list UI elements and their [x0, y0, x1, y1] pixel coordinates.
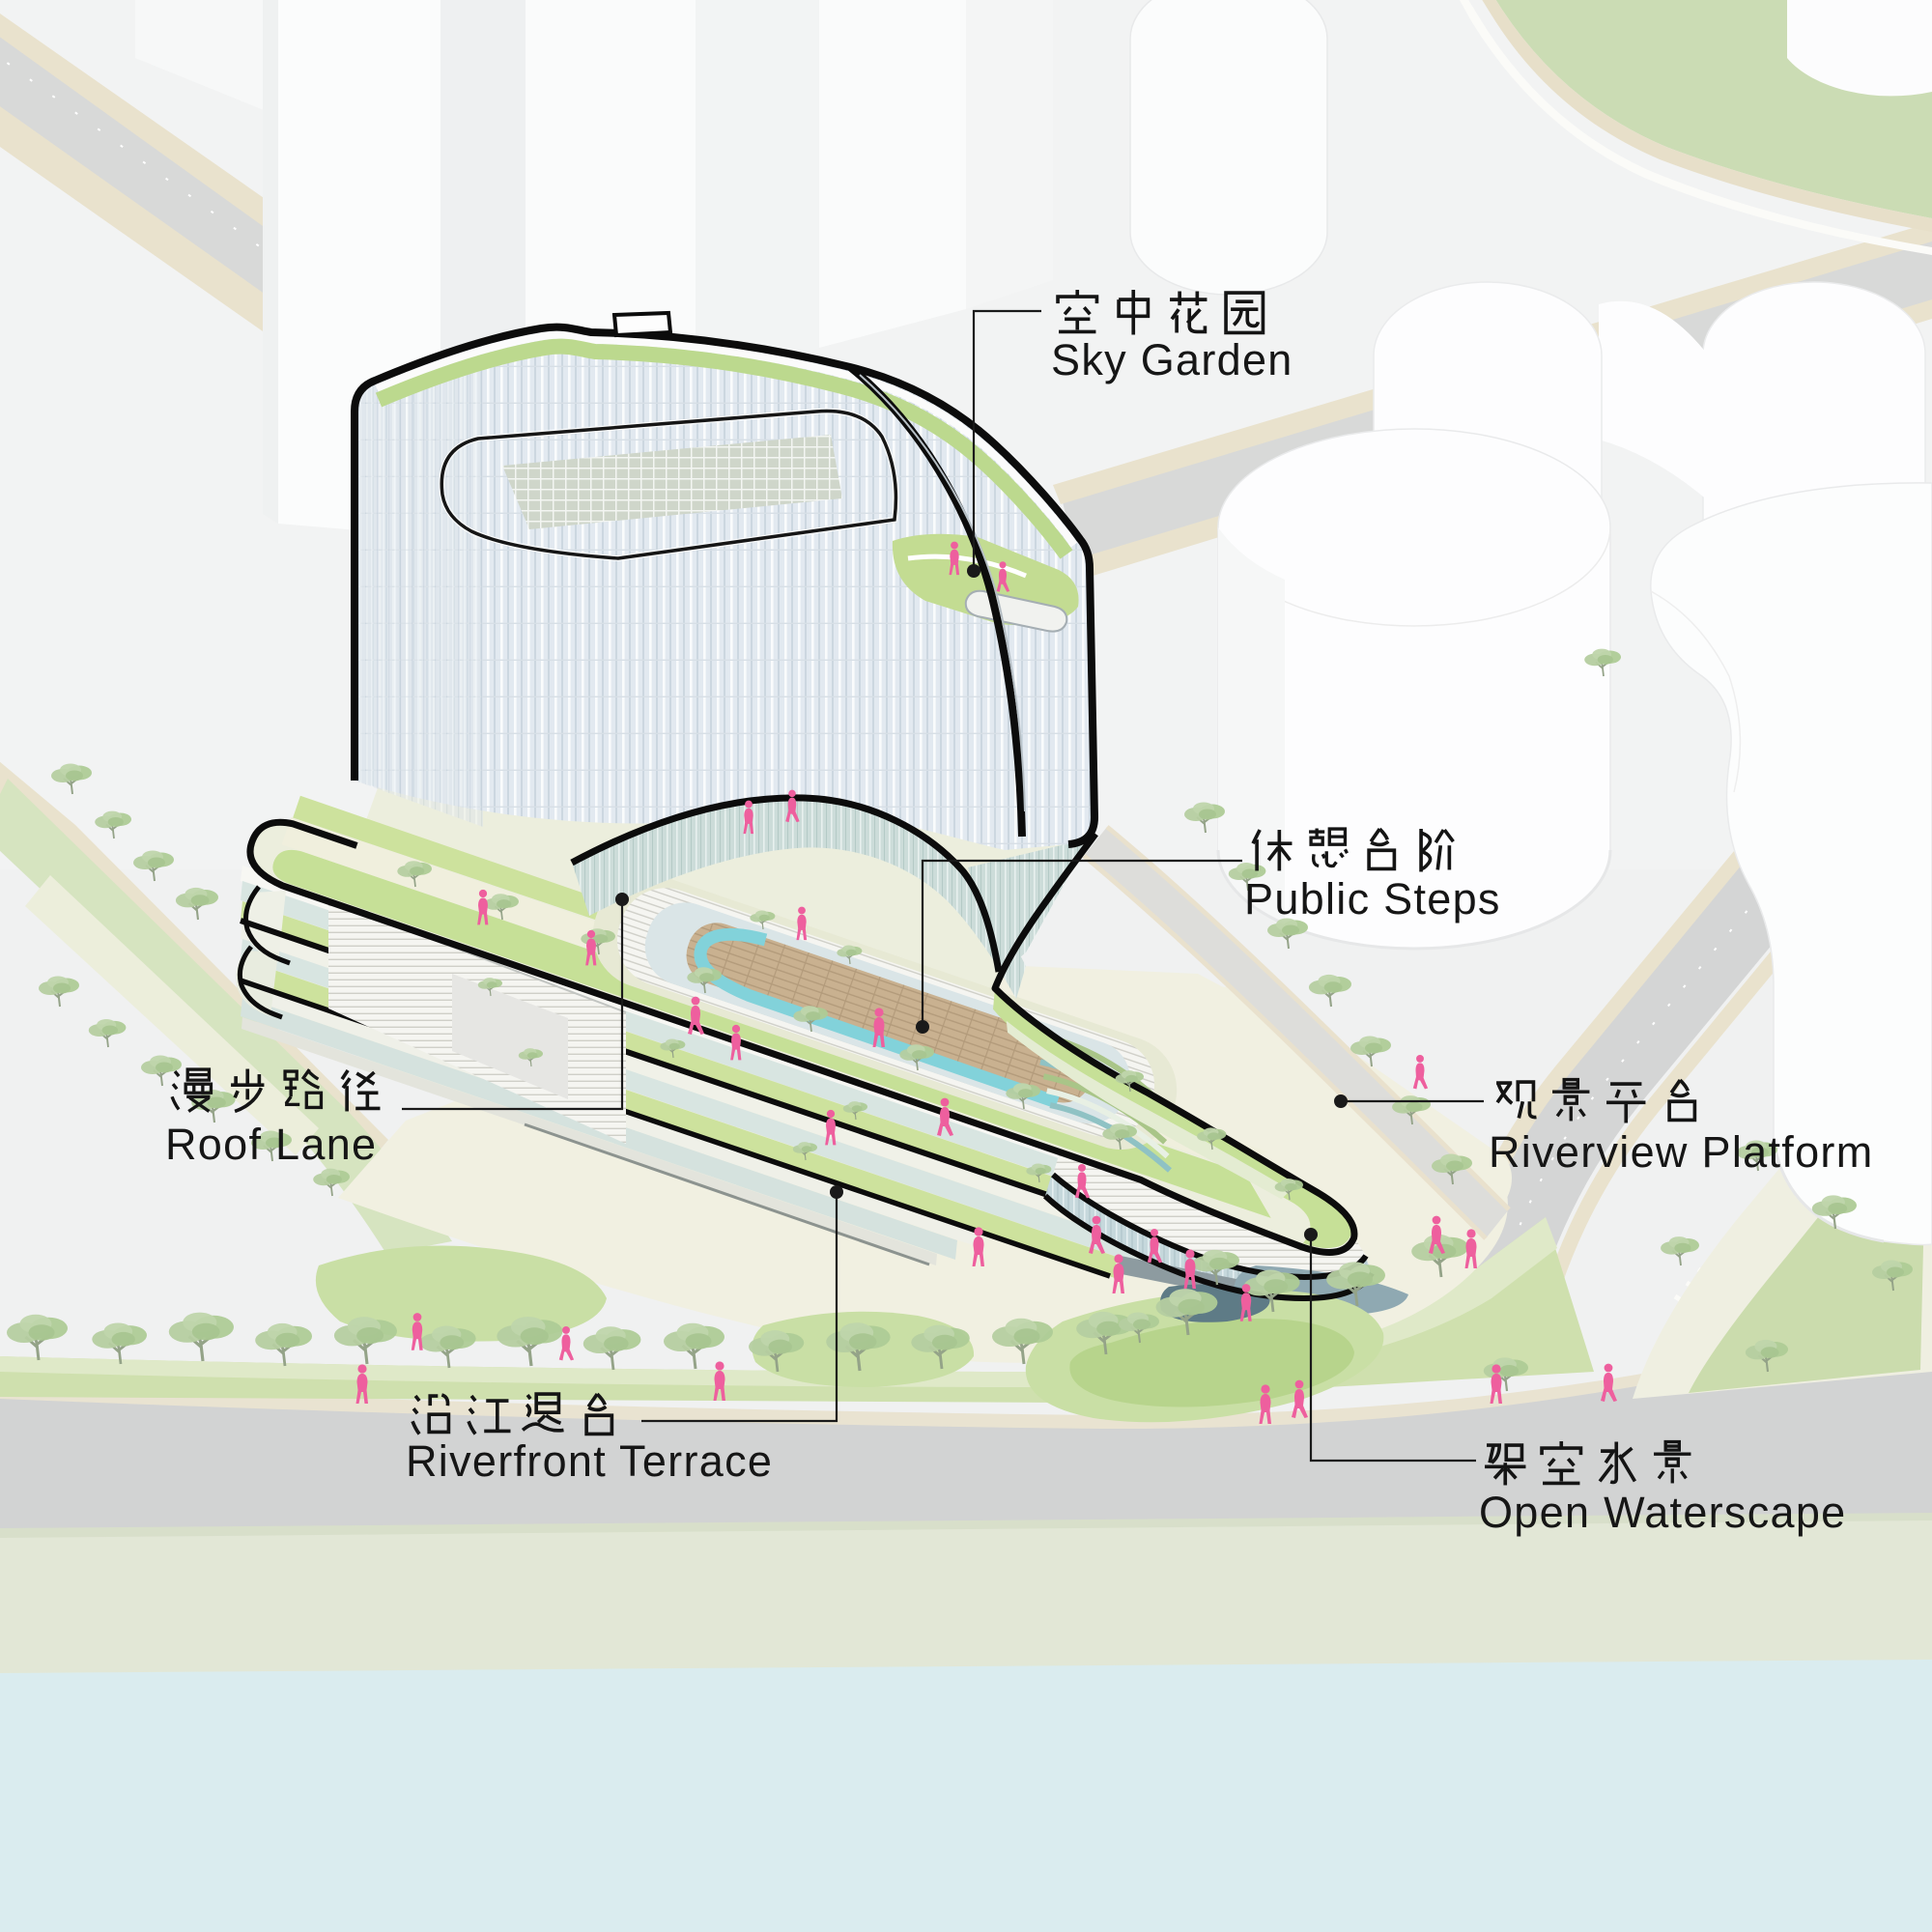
svg-text:Riverview Platform: Riverview Platform [1489, 1127, 1873, 1177]
svg-text:Sky Garden: Sky Garden [1051, 335, 1293, 384]
svg-text:Riverfront Terrace: Riverfront Terrace [406, 1436, 773, 1486]
svg-text:Open Waterscape: Open Waterscape [1479, 1488, 1847, 1537]
svg-text:Roof Lane: Roof Lane [165, 1120, 377, 1169]
svg-text:Public Steps: Public Steps [1244, 874, 1501, 923]
